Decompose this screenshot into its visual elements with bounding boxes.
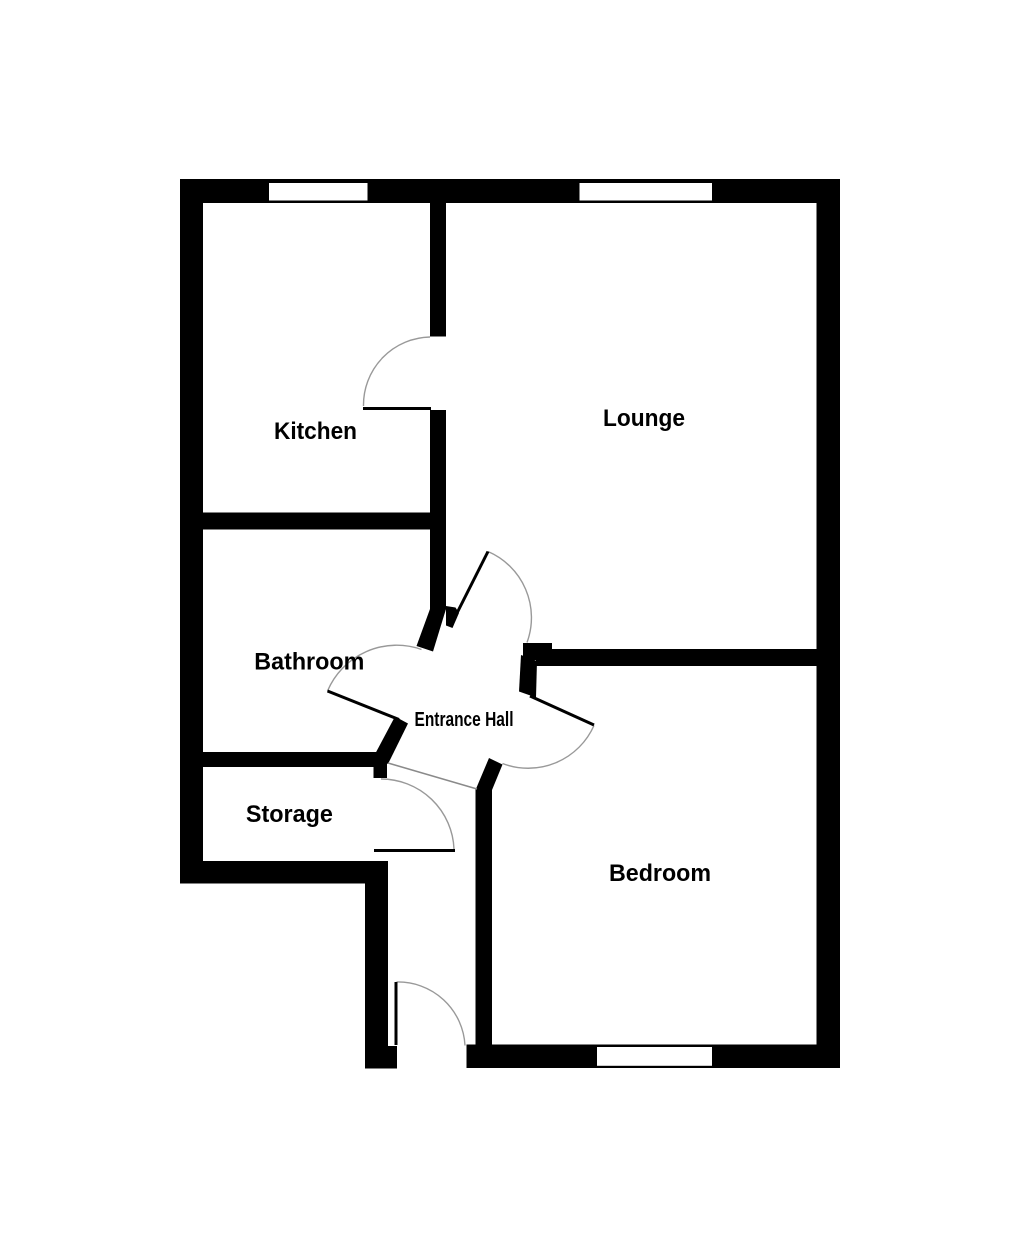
svg-text:Kitchen: Kitchen	[274, 418, 357, 445]
svg-text:Storage: Storage	[246, 801, 333, 828]
svg-text:Entrance Hall: Entrance Hall	[415, 709, 514, 731]
svg-text:Bedroom: Bedroom	[609, 860, 711, 887]
svg-text:Bathroom: Bathroom	[254, 649, 364, 676]
svg-text:Lounge: Lounge	[603, 405, 685, 432]
